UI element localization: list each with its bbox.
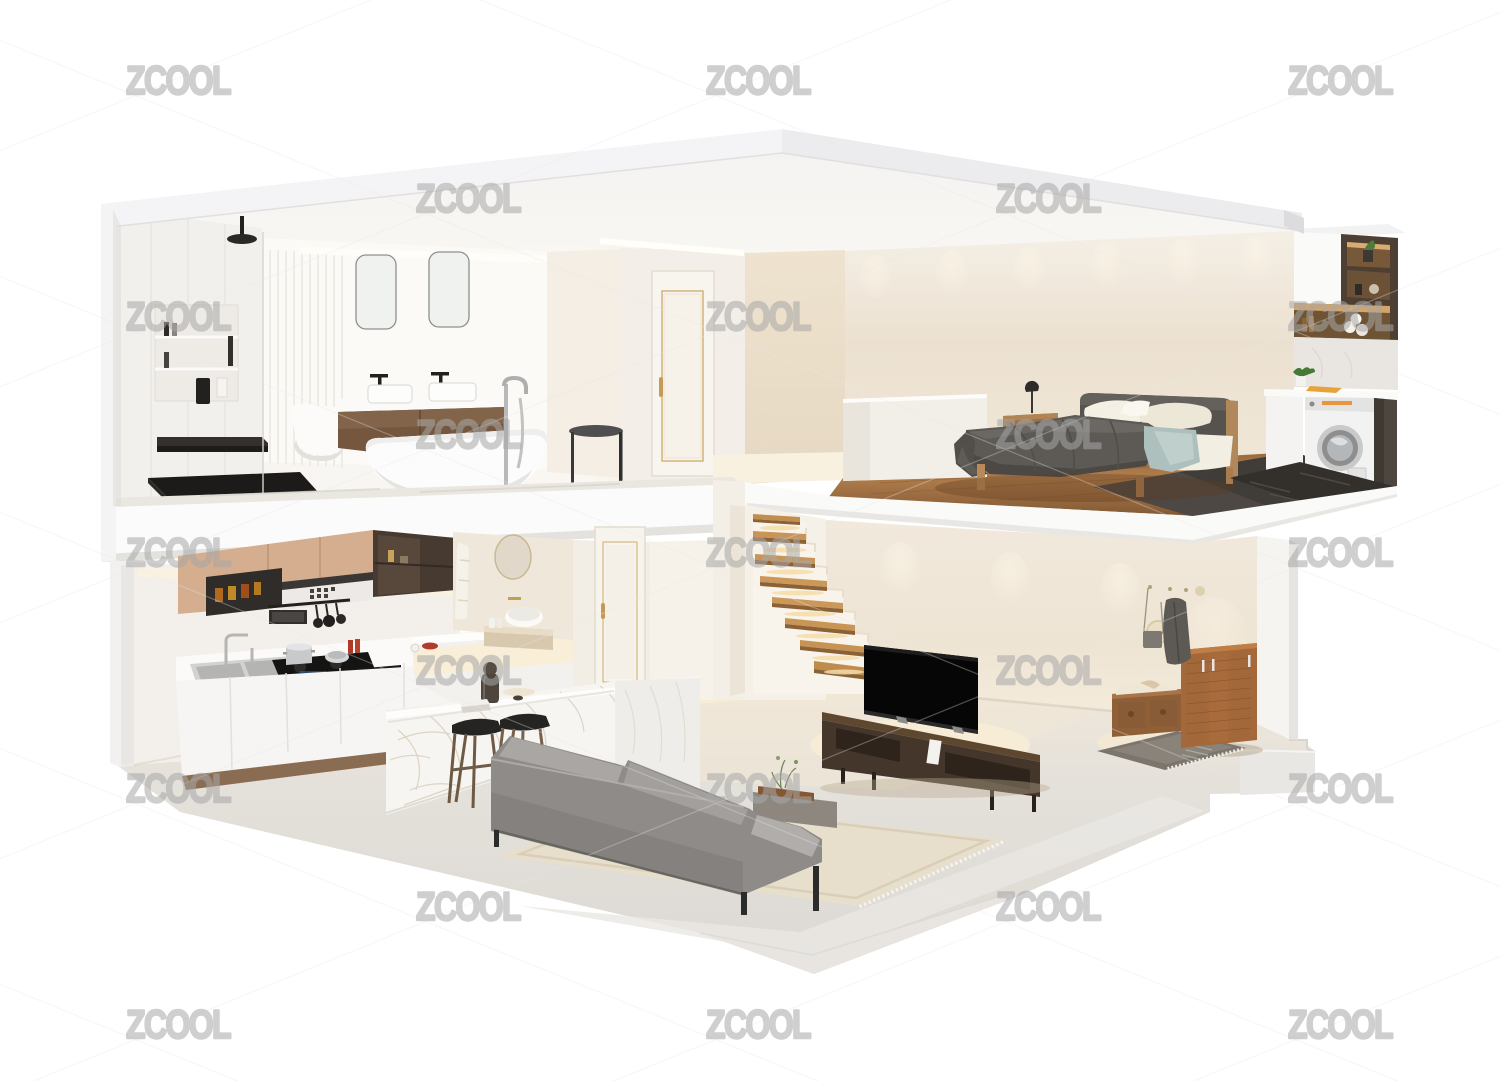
svg-text:ZCOOL: ZCOOL [126,59,231,103]
svg-text:ZCOOL: ZCOOL [996,649,1101,693]
svg-text:ZCOOL: ZCOOL [706,767,811,811]
svg-text:ZCOOL: ZCOOL [1288,531,1393,575]
svg-text:ZCOOL: ZCOOL [416,177,521,221]
svg-text:ZCOOL: ZCOOL [1288,59,1393,103]
svg-text:ZCOOL: ZCOOL [416,649,521,693]
svg-text:ZCOOL: ZCOOL [416,885,521,929]
svg-text:ZCOOL: ZCOOL [706,295,811,339]
svg-text:ZCOOL: ZCOOL [996,177,1101,221]
svg-text:ZCOOL: ZCOOL [126,1003,231,1047]
svg-text:ZCOOL: ZCOOL [996,413,1101,457]
svg-text:ZCOOL: ZCOOL [126,767,231,811]
svg-text:ZCOOL: ZCOOL [416,413,521,457]
svg-text:ZCOOL: ZCOOL [996,885,1101,929]
svg-text:ZCOOL: ZCOOL [126,295,231,339]
svg-text:ZCOOL: ZCOOL [706,531,811,575]
svg-text:ZCOOL: ZCOOL [1288,1003,1393,1047]
svg-text:ZCOOL: ZCOOL [1288,295,1393,339]
svg-text:ZCOOL: ZCOOL [1288,767,1393,811]
svg-text:ZCOOL: ZCOOL [706,59,811,103]
svg-text:ZCOOL: ZCOOL [126,531,231,575]
svg-text:ZCOOL: ZCOOL [706,1003,811,1047]
